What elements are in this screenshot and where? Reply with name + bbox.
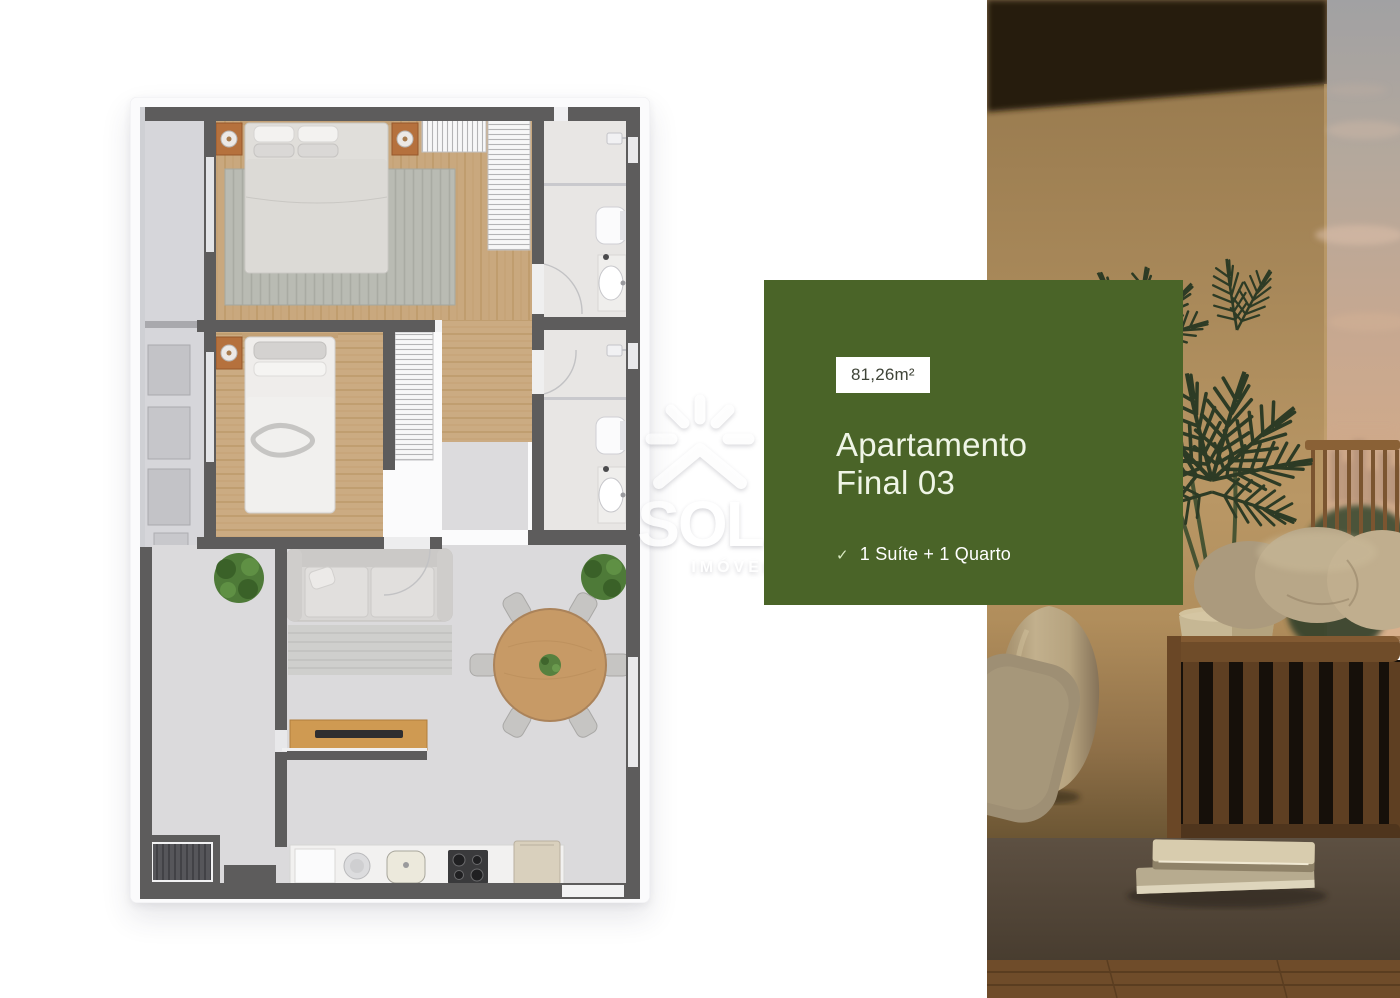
wood-floor xyxy=(987,960,1400,998)
floor-plan xyxy=(130,97,650,903)
balcony-side xyxy=(144,109,204,587)
tv-console xyxy=(290,720,427,750)
single-bed xyxy=(242,333,338,513)
fridge xyxy=(514,841,560,885)
title-line-2: Final 03 xyxy=(836,464,1143,502)
feature-label: 1 Suíte + 1 Quarto xyxy=(860,544,1011,565)
title-line-1: Apartamento xyxy=(836,426,1143,464)
unit-info-card: 81,26m² Apartamento Final 03 ✓ 1 Suíte +… xyxy=(764,280,1183,605)
double-bed xyxy=(242,119,392,273)
sofa xyxy=(287,549,452,621)
feature-row: ✓ 1 Suíte + 1 Quarto xyxy=(836,544,1143,565)
wooden-bench xyxy=(1167,636,1400,842)
nightstand xyxy=(216,123,242,155)
watermark-brand: SOL xyxy=(637,492,763,556)
wardrobe xyxy=(488,114,530,250)
floor-plan-drawing xyxy=(130,97,650,903)
area-badge: 81,26m² xyxy=(836,357,930,393)
living-rug xyxy=(288,625,452,675)
nightstand xyxy=(392,123,418,155)
nightstand xyxy=(216,337,242,369)
sun-house-logo-icon xyxy=(644,392,756,490)
kitchen-counter xyxy=(290,841,564,885)
hallway-floor xyxy=(442,320,532,442)
service-shaft xyxy=(144,835,220,889)
entry-plant xyxy=(214,553,264,603)
page-title: Apartamento Final 03 xyxy=(836,426,1143,502)
books xyxy=(1127,834,1327,908)
check-icon: ✓ xyxy=(836,546,849,564)
corner-plant xyxy=(581,554,627,600)
wardrobe xyxy=(395,332,433,460)
